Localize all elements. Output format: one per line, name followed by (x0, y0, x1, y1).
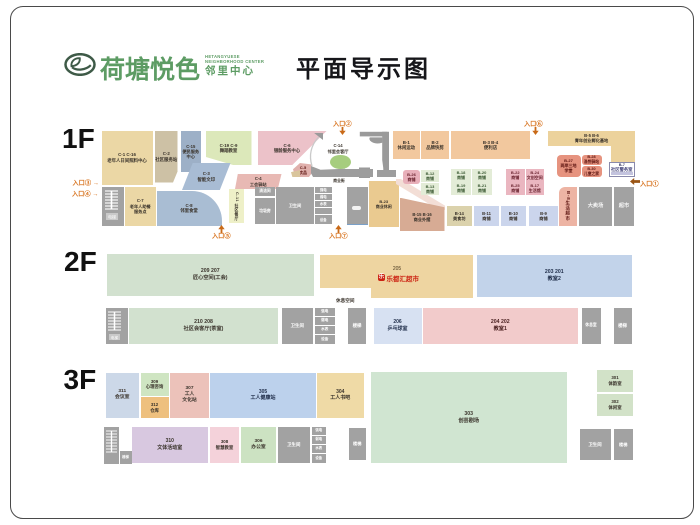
svg-text:电梯: 电梯 (111, 335, 119, 340)
svg-text:电梯: 电梯 (108, 214, 116, 220)
